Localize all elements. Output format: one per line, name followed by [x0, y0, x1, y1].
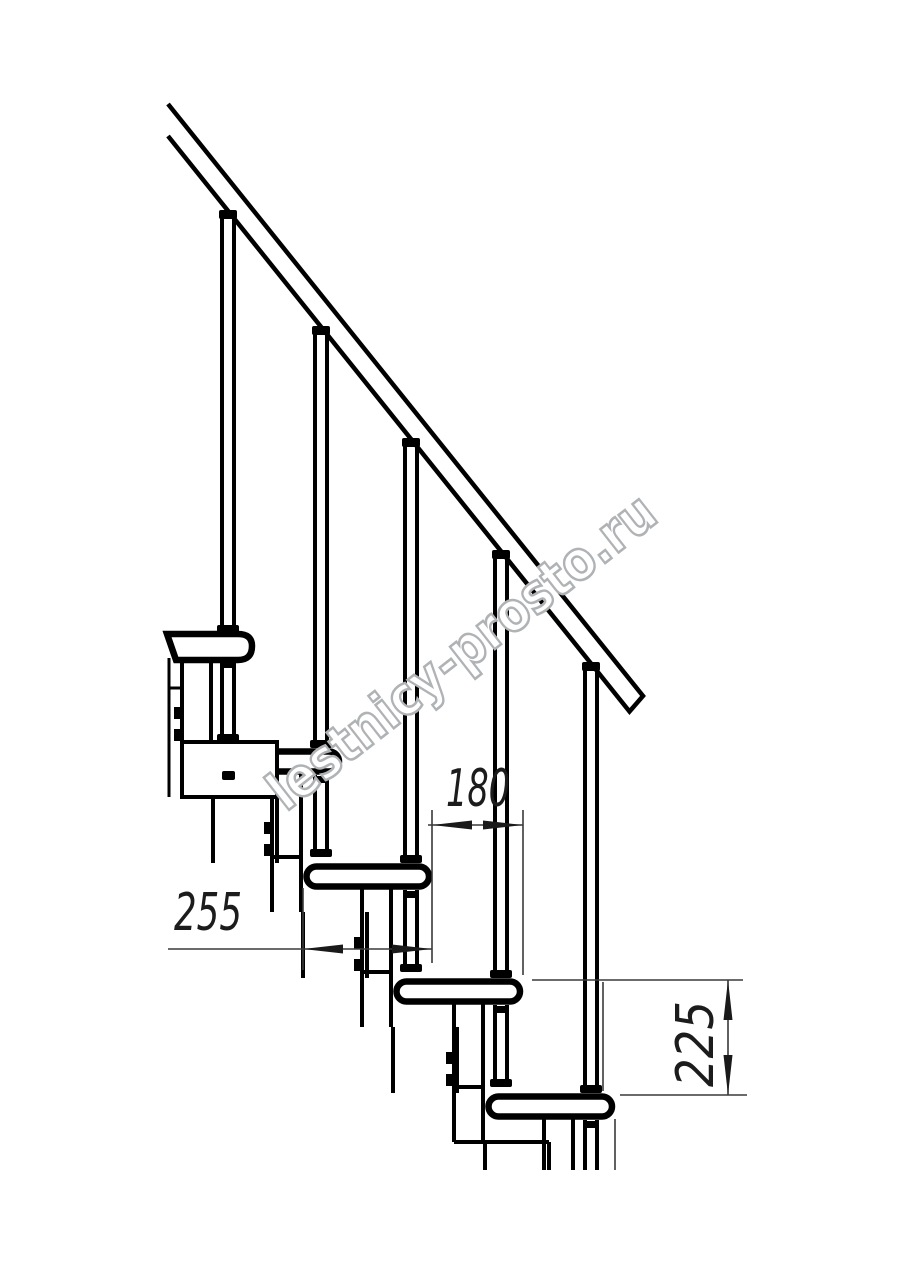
- dimension-label-255: 255: [174, 883, 242, 943]
- clamp-tab: [264, 822, 272, 834]
- dimension-label-225: 225: [666, 1001, 726, 1087]
- tread: [167, 634, 252, 660]
- baluster-foot: [400, 855, 422, 863]
- clamp-tab: [354, 959, 362, 971]
- staircase-drawing: 180 255 225 lestnicy-prosto.ru: [0, 0, 914, 1280]
- bolt: [222, 771, 235, 780]
- tread: [307, 867, 430, 887]
- dimension-label-180: 180: [446, 759, 510, 819]
- dimension-225: 225: [532, 980, 747, 1170]
- baluster: [217, 210, 239, 633]
- clamp-tab: [446, 1052, 454, 1064]
- module-plate: [182, 742, 277, 863]
- tread: [489, 1097, 613, 1117]
- clamp-tab: [174, 707, 182, 719]
- arrow-right-icon: [392, 945, 432, 954]
- clamp-tab: [264, 844, 272, 856]
- arrow-left-icon: [303, 945, 343, 954]
- baluster-foot: [490, 970, 512, 978]
- baluster-foot: [580, 1085, 602, 1093]
- drawing-canvas: 180 255 225 lestnicy-prosto.ru: [0, 0, 914, 1280]
- clamp-tab: [446, 1074, 454, 1086]
- clamp-tab: [174, 729, 182, 741]
- baluster-foot: [217, 625, 239, 633]
- arrow-left-icon: [432, 821, 472, 830]
- baluster: [310, 326, 332, 748]
- tread: [397, 982, 521, 1002]
- baluster: [580, 662, 602, 1093]
- clamp-tab: [354, 937, 362, 949]
- arrow-right-icon: [483, 821, 523, 830]
